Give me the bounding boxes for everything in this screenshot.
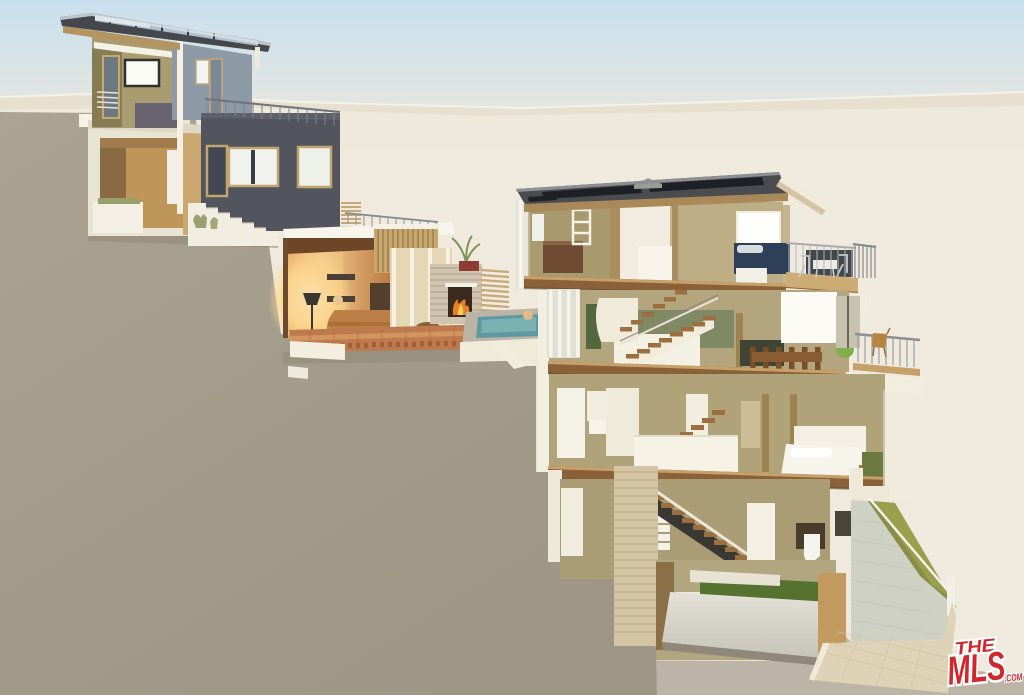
svg-text:.COM: .COM: [1004, 672, 1024, 685]
svg-text:MLS: MLS: [945, 644, 1007, 694]
